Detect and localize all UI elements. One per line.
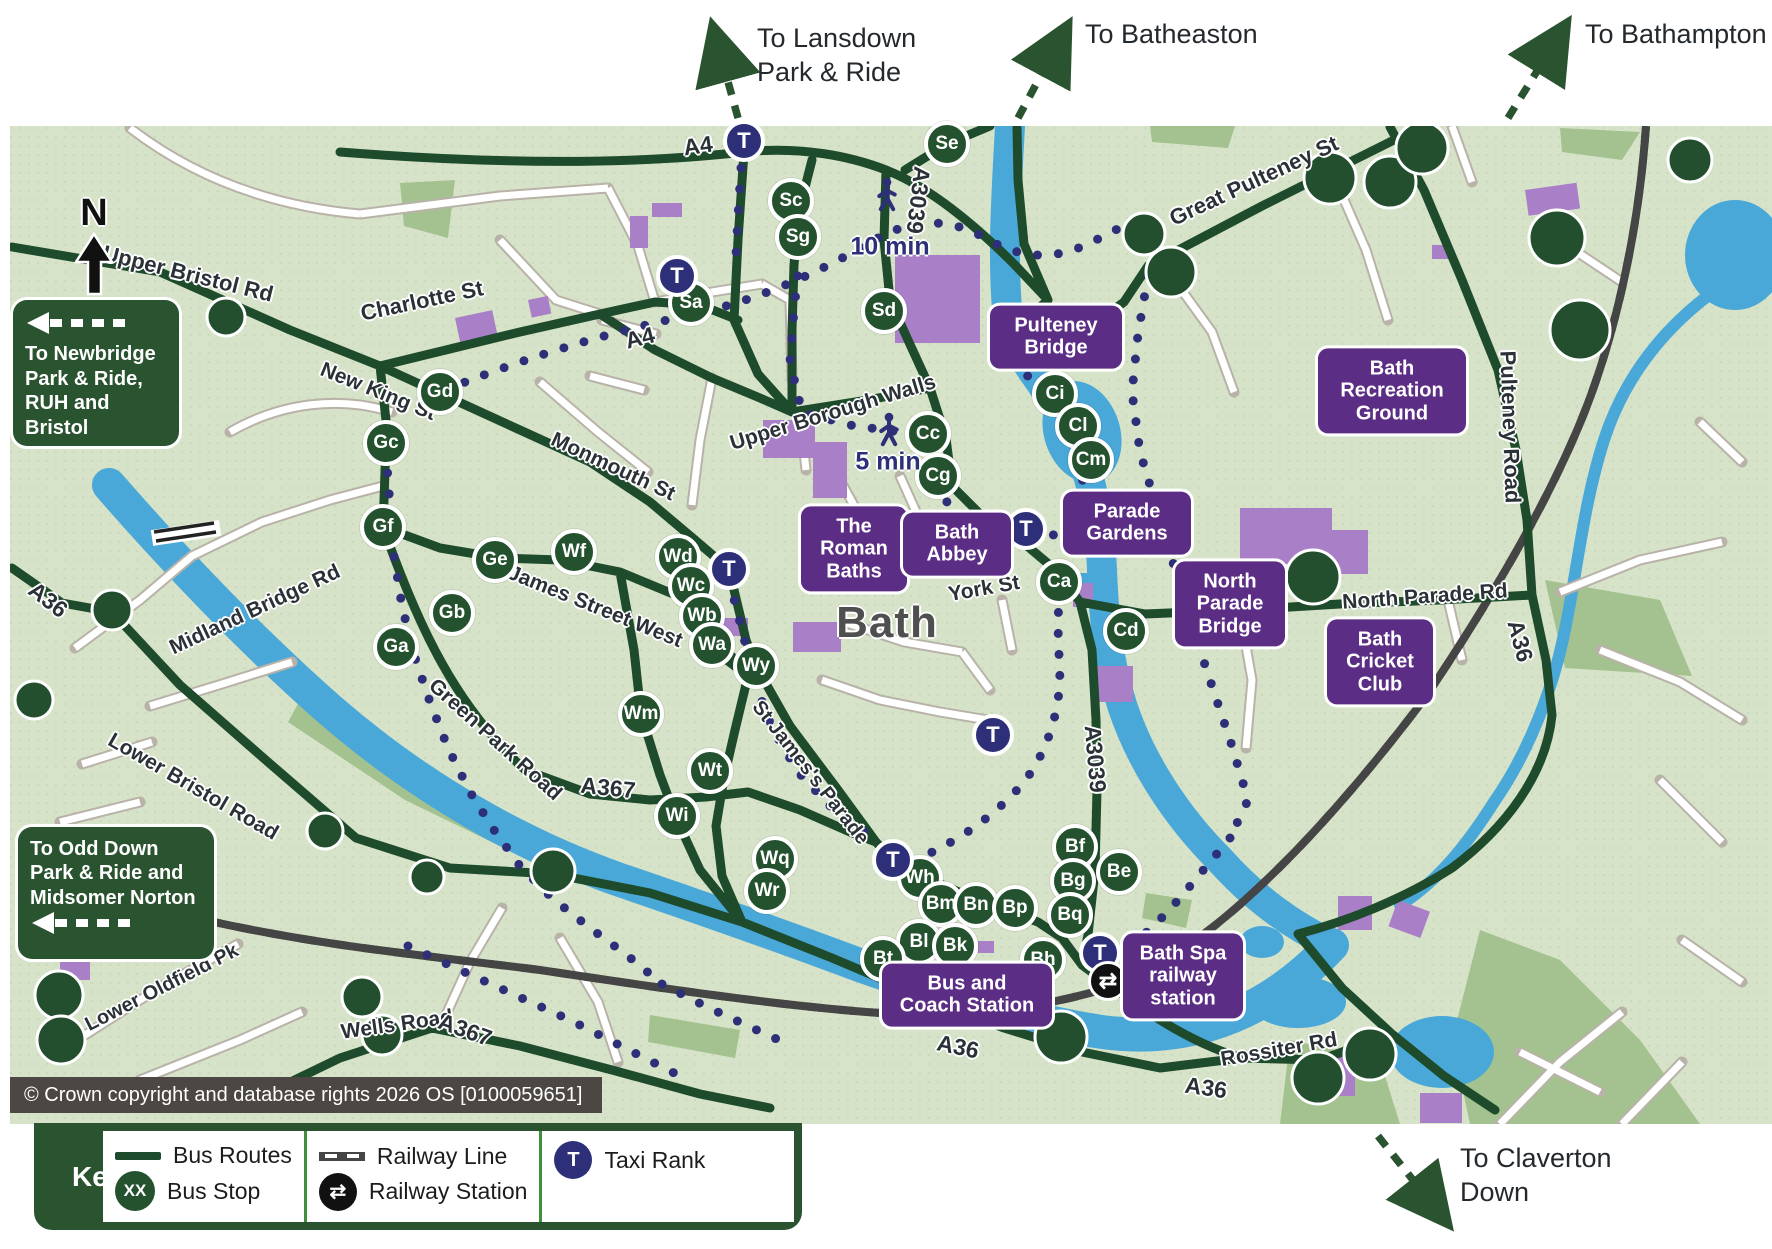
poi-label-pulteney-bridge: Pulteney Bridge	[990, 306, 1122, 369]
key-taxi-rank-label: Taxi Rank	[604, 1147, 705, 1174]
key-col-taxi: T Taxi Rank	[539, 1131, 794, 1222]
bus-stop-gd: Gd	[417, 369, 463, 415]
bus-stop-bp: Bp	[992, 885, 1038, 931]
road-label-north-parade-rd: North Parade Rd	[1342, 579, 1509, 615]
road-label-upper-bristol-rd: Upper Bristol Rd	[100, 240, 276, 308]
road-label-rossiter-rd: Rossiter Rd	[1219, 1028, 1339, 1072]
dashed-arrow-icon	[30, 910, 140, 936]
bus-stop-swatch: XX	[115, 1171, 155, 1211]
bus-stop-sd: Sd	[861, 288, 907, 334]
key-col-rail: Railway Line ⇄ Railway Station	[304, 1131, 540, 1222]
road-label-charlotte-st: Charlotte St	[358, 275, 485, 326]
walk-time-label: 5 min	[855, 448, 920, 477]
bus-stop-bq: Bq	[1047, 892, 1093, 938]
poi-label-north-parade-bridge: North Parade Bridge	[1175, 561, 1285, 646]
bus-stop-wi: Wi	[654, 793, 700, 839]
compass-north-label: N	[80, 192, 107, 235]
road-label-st-james-s-parade: St James's Parade	[747, 697, 873, 850]
bus-stop-wf: Wf	[551, 529, 597, 575]
bus-stop-sg: Sg	[775, 214, 821, 260]
railway-station-swatch: ⇄	[319, 1173, 357, 1211]
key-bus-routes: Bus Routes	[115, 1142, 292, 1169]
direction-sign-odd-down: To Odd Down Park & Ride and Midsomer Nor…	[18, 827, 214, 959]
taxi-rank-icon-5: T	[872, 839, 914, 881]
bus-stop-be: Be	[1096, 849, 1142, 895]
poi-label-parade-gardens: Parade Gardens	[1063, 492, 1191, 555]
road-label-a367: A367	[579, 772, 637, 805]
direction-sign-text: To Odd Down Park & Ride and Midsomer Nor…	[30, 837, 202, 910]
key-railway-line-label: Railway Line	[377, 1143, 507, 1170]
road-label-a3039: A3039	[900, 165, 935, 236]
bus-stop-gc: Gc	[363, 420, 409, 466]
dashed-arrow-icon	[25, 310, 135, 336]
road-label-a36: A36	[935, 1029, 982, 1064]
bus-stop-cd: Cd	[1103, 608, 1149, 654]
taxi-rank-icon-1: T	[656, 255, 698, 297]
offmap-destination-bathampton: To Bathampton	[1585, 18, 1767, 52]
poi-label-the-roman-baths: The Roman Baths	[801, 506, 907, 591]
bus-stop-gb: Gb	[429, 590, 475, 636]
poi-label-bus-and-coach-station: Bus and Coach Station	[882, 964, 1052, 1027]
road-label-monmouth-st: Monmouth St	[547, 428, 679, 506]
key-bus-stop-label: Bus Stop	[167, 1178, 260, 1205]
road-label-green-park-road: Green Park Road	[424, 674, 567, 806]
key-taxi-rank: T Taxi Rank	[554, 1141, 782, 1179]
poi-label-bath-recreation-ground: Bath Recreation Ground	[1318, 348, 1466, 433]
road-label-a4: A4	[622, 321, 657, 354]
road-label-james-street-west: James Street West	[504, 561, 686, 653]
offmap-destination-lansdown: To Lansdown Park & Ride	[757, 22, 916, 90]
bus-stop-cm: Cm	[1068, 437, 1114, 483]
railway-station-icon-0: ⇄	[1088, 961, 1128, 1001]
bus-stop-bk: Bk	[932, 923, 978, 969]
copyright-bar: © Crown copyright and database rights 20…	[10, 1077, 602, 1113]
road-label-a3039: A3039	[1079, 724, 1112, 794]
taxi-rank-icon-0: T	[723, 120, 765, 162]
key-col-bus: Bus Routes XX Bus Stop	[103, 1131, 304, 1222]
key-bus-stop: XX Bus Stop	[115, 1171, 292, 1211]
taxi-rank-icon-3: T	[1005, 508, 1047, 550]
road-label-a36: A36	[23, 576, 73, 623]
poi-label-bath-abbey: Bath Abbey	[903, 513, 1011, 576]
key-bus-routes-label: Bus Routes	[173, 1142, 292, 1169]
bus-stop-gf: Gf	[360, 504, 406, 550]
bus-stop-wt: Wt	[687, 748, 733, 794]
railway-line-swatch	[319, 1152, 365, 1161]
walker-icon-1	[874, 413, 904, 452]
offmap-destination-batheaston: To Batheaston	[1085, 18, 1258, 52]
city-label: Bath	[836, 598, 938, 648]
road-label-pulteney-road: Pulteney Road	[1494, 350, 1525, 504]
key-panel: Bus Routes XX Bus Stop Railway Line ⇄ Ra…	[103, 1131, 794, 1222]
key-railway-line: Railway Line	[319, 1143, 528, 1170]
offmap-destination-claverton-down: To Claverton Down	[1460, 1142, 1612, 1210]
taxi-rank-icon-4: T	[972, 714, 1014, 756]
bath-bus-map: { "app": { "city_label": "Bath", "compas…	[0, 0, 1772, 1249]
key-railway-station-label: Railway Station	[369, 1178, 528, 1205]
walk-time-label: 10 min	[850, 233, 929, 262]
poi-label-bath-cricket-club: Bath Cricket Club	[1327, 619, 1433, 704]
road-label-a367: A367	[435, 1008, 496, 1052]
bus-route-swatch	[115, 1152, 161, 1160]
bus-stop-ca: Ca	[1036, 559, 1082, 605]
road-label-great-pulteney-st: Great Pulteney St	[1165, 130, 1342, 231]
bus-stop-wr: Wr	[744, 868, 790, 914]
road-label-york-st: York St	[946, 571, 1021, 607]
taxi-rank-icon-2: T	[708, 548, 750, 590]
road-label-a4: A4	[682, 131, 715, 162]
bus-stop-ga: Ga	[373, 624, 419, 670]
bus-stop-se: Se	[924, 121, 970, 167]
map-key: Key: Bus Routes XX Bus Stop Railway Line	[34, 1123, 802, 1230]
direction-sign-newbridge: To Newbridge Park & Ride, RUH and Bristo…	[13, 300, 179, 446]
road-label-a36: A36	[1183, 1072, 1229, 1105]
direction-sign-text: To Newbridge Park & Ride, RUH and Bristo…	[25, 342, 167, 440]
key-railway-station: ⇄ Railway Station	[319, 1173, 528, 1211]
road-label-midland-bridge-rd: Midland Bridge Rd	[166, 560, 344, 660]
taxi-rank-swatch: T	[554, 1141, 592, 1179]
bus-stop-ge: Ge	[472, 537, 518, 583]
bus-stop-wa: Wa	[689, 622, 735, 668]
walker-icon-0	[872, 178, 902, 217]
bus-stop-cg: Cg	[915, 453, 961, 499]
compass: N	[64, 192, 124, 302]
bus-stop-wm: Wm	[618, 691, 664, 737]
road-label-a36: A36	[1501, 617, 1538, 665]
poi-label-bath-spa-railway-station: Bath Spa railway station	[1123, 933, 1243, 1018]
bus-stop-wy: Wy	[733, 643, 779, 689]
